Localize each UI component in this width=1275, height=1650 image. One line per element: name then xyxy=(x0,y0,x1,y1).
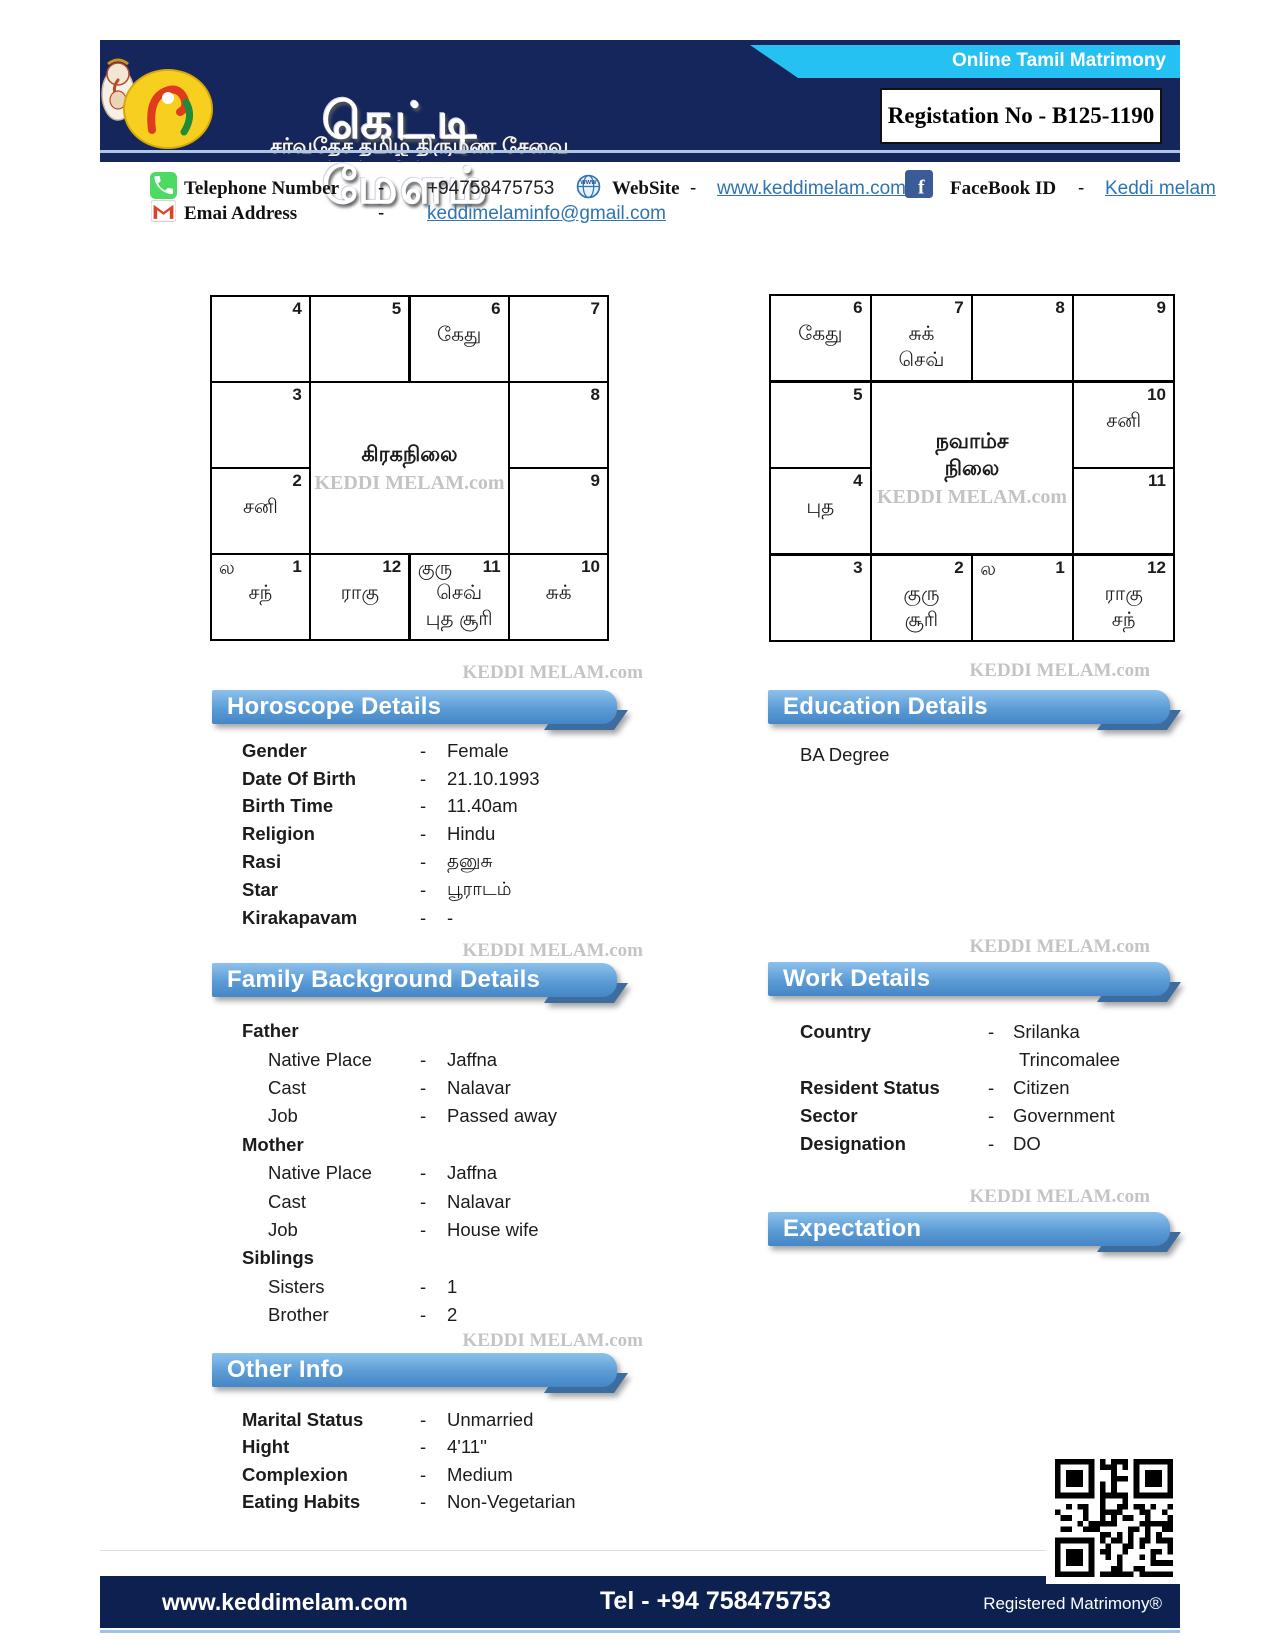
footer-registered-label: Registered Matrimony® xyxy=(983,1594,1162,1614)
navamsa-cell-3: 3 xyxy=(771,556,870,640)
facebook-label: FaceBook ID xyxy=(950,178,1056,200)
navamsa-cell-8: 8 xyxy=(973,296,1072,380)
dash: - xyxy=(1078,178,1084,200)
dash: - xyxy=(378,178,384,200)
navamsa-chart-center: நவாம்ச நிலை KEDDI MELAM.com xyxy=(872,383,1072,554)
section-banner-other: Other Info xyxy=(212,1353,617,1387)
section-title: Family Background Details xyxy=(227,966,540,994)
website-link[interactable]: www.keddimelam.com xyxy=(717,178,906,200)
website-label: WebSite xyxy=(612,178,680,200)
section-banner-education: Education Details xyxy=(768,690,1170,724)
dash: - xyxy=(378,203,384,225)
dash: - xyxy=(690,178,696,200)
detail-row: Cast-Nalavar xyxy=(242,1074,622,1102)
detail-row: Eating Habits-Non-Vegetarian xyxy=(242,1489,612,1517)
section-title: Other Info xyxy=(227,1356,344,1384)
group-heading: Father xyxy=(242,1017,622,1045)
detail-row: Kirakapavam-- xyxy=(242,904,612,932)
rasi-chart-title: கிரகநிலை xyxy=(361,441,457,468)
gmail-icon xyxy=(151,200,176,227)
detail-row: Country-Srilanka xyxy=(800,1018,1175,1046)
section-banner-expectation: Expectation xyxy=(768,1212,1170,1246)
navamsa-cell-1: ல1 xyxy=(973,556,1072,640)
svg-text:WWW: WWW xyxy=(580,180,597,186)
detail-row: Marital Status-Unmarried xyxy=(242,1406,612,1434)
footer-bar: www.keddimelam.com Tel - +94 758475753 R… xyxy=(100,1576,1180,1628)
detail-row: Star-பூராடம் xyxy=(242,876,612,904)
watermark: KEDDI MELAM.com xyxy=(448,662,643,684)
detail-row: Resident Status-Citizen xyxy=(800,1074,1175,1102)
watermark: KEDDI MELAM.com xyxy=(955,660,1150,682)
navamsa-cell-11: 11 xyxy=(1074,469,1173,553)
navamsa-cell-7: 7சுக்செவ் xyxy=(872,296,971,380)
detail-row: Hight-4'11'' xyxy=(242,1434,612,1462)
qr-code xyxy=(1046,1452,1182,1584)
navamsa-cell-4: 4புத xyxy=(771,469,870,553)
family-background-details: Father Native Place-Jaffna Cast-Nalavar … xyxy=(242,1017,622,1329)
telephone-label: Telephone Number xyxy=(184,178,339,200)
detail-row: Date Of Birth-21.10.1993 xyxy=(242,765,612,793)
telephone-value: +94758475753 xyxy=(427,178,554,200)
watermark: KEDDI MELAM.com xyxy=(315,472,505,495)
section-banner-work: Work Details xyxy=(768,962,1170,996)
watermark: KEDDI MELAM.com xyxy=(955,936,1150,958)
matrimony-profile-page: Online Tamil Matrimony கெட்டி மேளம் சர்வ… xyxy=(0,0,1275,1650)
group-heading: Siblings xyxy=(242,1244,622,1272)
rasi-cell-12: 12ராகு xyxy=(311,555,408,639)
detail-row: Trincomalee xyxy=(800,1046,1175,1074)
education-content: BA Degree xyxy=(800,744,889,766)
detail-row: Gender-Female xyxy=(242,737,612,765)
section-title: Horoscope Details xyxy=(227,693,441,721)
rasi-chart: 4 5 6கேது 7 3 கிரகநிலை KEDDI MELAM.com 8… xyxy=(210,295,609,641)
rasi-cell-10: 10சுக் xyxy=(510,555,607,639)
detail-row: Rasi-தனுசு xyxy=(242,848,612,876)
ribbon-label: Online Tamil Matrimony xyxy=(952,50,1166,72)
rasi-cell-5: 5 xyxy=(311,297,408,381)
header-divider xyxy=(100,150,1180,153)
watermark: KEDDI MELAM.com xyxy=(448,940,643,962)
rasi-cell-1: ல1சந் xyxy=(212,555,309,639)
detail-row: Cast-Nalavar xyxy=(242,1187,622,1215)
section-banner-family: Family Background Details xyxy=(212,963,617,997)
registration-number: Registation No - B125-1190 xyxy=(888,103,1154,129)
rasi-cell-2: 2சனி xyxy=(212,469,309,553)
detail-row: Designation-DO xyxy=(800,1130,1175,1158)
navamsa-chart: 6கேது 7சுக்செவ் 8 9 5 நவாம்ச நிலை KEDDI … xyxy=(769,294,1175,642)
watermark: KEDDI MELAM.com xyxy=(955,1186,1150,1208)
footer-telephone: Tel - +94 758475753 xyxy=(600,1587,831,1616)
svg-text:f: f xyxy=(918,176,925,198)
logo-icon xyxy=(122,68,214,155)
section-title: Education Details xyxy=(783,693,988,721)
email-link[interactable]: keddimelaminfo@gmail.com xyxy=(427,203,666,225)
navamsa-cell-5: 5 xyxy=(771,383,870,467)
other-info: Marital Status-Unmarried Hight-4'11'' Co… xyxy=(242,1406,612,1516)
rasi-cell-11: குரு11செவ்புத சூரி xyxy=(411,555,508,639)
rasi-cell-4: 4 xyxy=(212,297,309,381)
rasi-chart-center: கிரகநிலை KEDDI MELAM.com xyxy=(311,383,507,553)
section-title: Expectation xyxy=(783,1215,921,1243)
detail-row: Sector-Government xyxy=(800,1102,1175,1130)
footer-underline xyxy=(100,1630,1180,1633)
globe-www-icon: WWW xyxy=(576,174,601,204)
rasi-cell-6: 6கேது xyxy=(411,297,508,381)
navamsa-cell-10: 10சனி xyxy=(1074,383,1173,467)
detail-row: Job-Passed away xyxy=(242,1102,622,1130)
registration-box: Registation No - B125-1190 xyxy=(880,88,1162,144)
group-heading: Mother xyxy=(242,1131,622,1159)
detail-row: Complexion-Medium xyxy=(242,1461,612,1489)
detail-row: Job-House wife xyxy=(242,1216,622,1244)
watermark: KEDDI MELAM.com xyxy=(877,486,1067,509)
section-banner-horoscope: Horoscope Details xyxy=(212,690,617,724)
rasi-cell-9: 9 xyxy=(510,469,607,553)
footer-website: www.keddimelam.com xyxy=(162,1589,408,1616)
detail-row: Native Place-Jaffna xyxy=(242,1159,622,1187)
navamsa-cell-6: 6கேது xyxy=(771,296,870,380)
navamsa-cell-2: 2குருசூரி xyxy=(872,556,971,640)
horoscope-details: Gender-Female Date Of Birth-21.10.1993 B… xyxy=(242,737,612,932)
ribbon: Online Tamil Matrimony xyxy=(100,45,1180,78)
detail-row: Sisters-1 xyxy=(242,1273,622,1301)
navamsa-cell-12: 12ராகுசந் xyxy=(1074,556,1173,640)
section-title: Work Details xyxy=(783,965,930,993)
work-details: Country-Srilanka Trincomalee Resident St… xyxy=(800,1018,1175,1158)
navamsa-cell-9: 9 xyxy=(1074,296,1173,380)
detail-row: Native Place-Jaffna xyxy=(242,1045,622,1073)
content-bottom-rule xyxy=(100,1550,1180,1551)
watermark: KEDDI MELAM.com xyxy=(448,1330,643,1352)
detail-row: Birth Time-11.40am xyxy=(242,793,612,821)
rasi-cell-7: 7 xyxy=(510,297,607,381)
header-divider-2 xyxy=(100,156,1180,160)
facebook-link[interactable]: Keddi melam xyxy=(1105,178,1216,200)
detail-row: Religion-Hindu xyxy=(242,820,612,848)
navamsa-chart-title: நவாம்ச நிலை xyxy=(935,428,1008,482)
facebook-icon: f xyxy=(905,170,933,203)
detail-row: Brother-2 xyxy=(242,1301,622,1329)
email-label: Emai Address xyxy=(184,203,297,225)
rasi-cell-3: 3 xyxy=(212,383,309,467)
rasi-cell-8: 8 xyxy=(510,383,607,467)
